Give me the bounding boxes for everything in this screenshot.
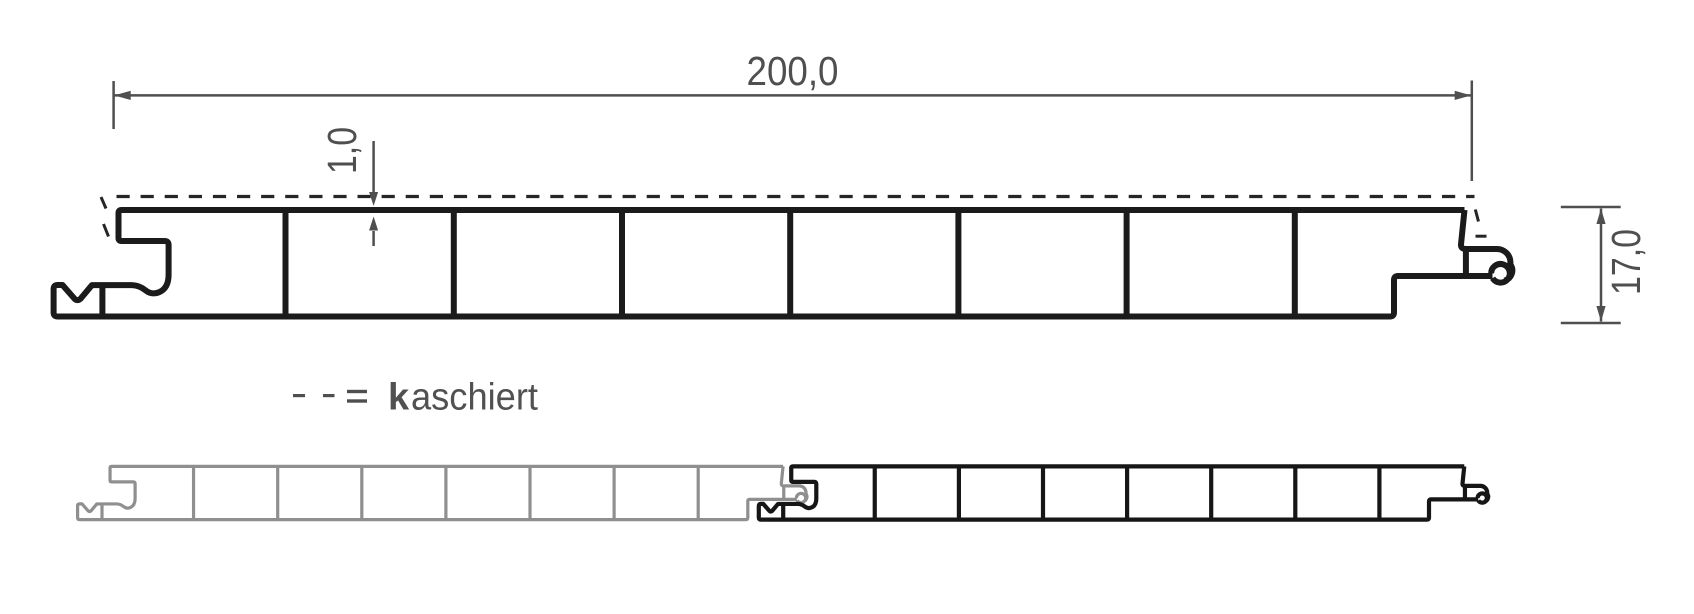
svg-text:aschiert: aschiert	[411, 376, 538, 418]
svg-text:k: k	[388, 376, 410, 418]
svg-text:17,0: 17,0	[1603, 229, 1649, 295]
svg-text:200,0: 200,0	[747, 48, 839, 94]
svg-text:1,0: 1,0	[319, 127, 365, 174]
